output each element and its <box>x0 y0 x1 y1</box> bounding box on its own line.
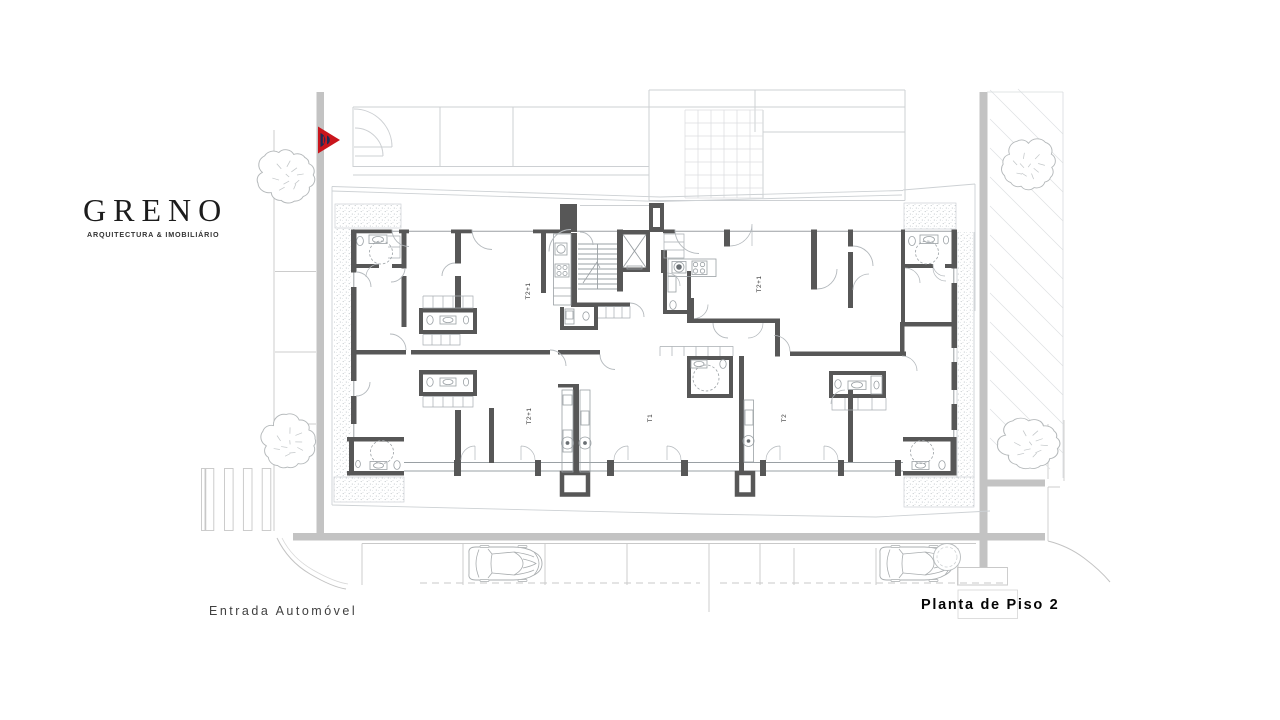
svg-text:T1: T1 <box>647 414 654 423</box>
svg-text:T2+1: T2+1 <box>756 276 763 293</box>
svg-text:T2: T2 <box>781 414 788 423</box>
svg-text:T2+1: T2+1 <box>526 408 533 425</box>
svg-text:T2+1: T2+1 <box>525 283 532 300</box>
